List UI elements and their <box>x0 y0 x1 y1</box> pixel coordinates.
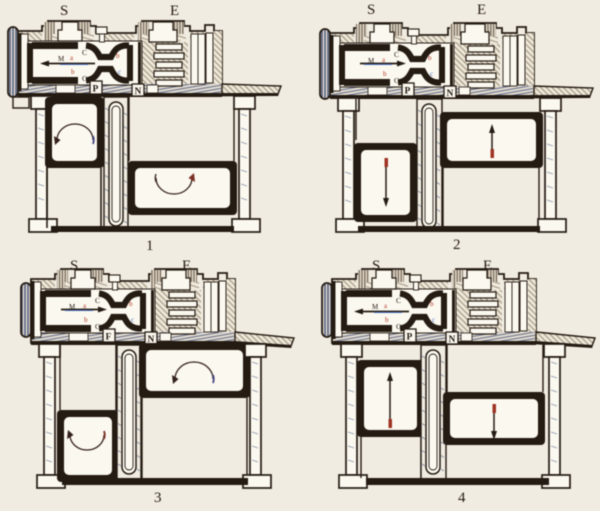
svg-text:N: N <box>447 89 454 99</box>
svg-text:b: b <box>430 300 434 308</box>
svg-text:C: C <box>396 296 401 305</box>
svg-text:b: b <box>129 300 133 308</box>
svg-text:C: C <box>82 48 87 57</box>
svg-text:E: E <box>170 3 179 19</box>
svg-text:P: P <box>405 87 411 97</box>
svg-text:C: C <box>394 76 399 85</box>
svg-text:b: b <box>383 70 387 78</box>
svg-text:c: c <box>432 316 435 324</box>
svg-text:C: C <box>394 50 399 59</box>
svg-text:4: 4 <box>458 490 466 506</box>
svg-text:b: b <box>116 52 120 60</box>
svg-text:N: N <box>135 87 142 97</box>
svg-text:b: b <box>428 54 432 62</box>
svg-text:c: c <box>430 70 433 78</box>
svg-text:M: M <box>58 55 65 63</box>
svg-text:C: C <box>95 296 100 305</box>
svg-text:1: 1 <box>146 238 154 254</box>
svg-text:2: 2 <box>453 237 461 253</box>
svg-text:C: C <box>95 322 100 331</box>
svg-text:C: C <box>82 74 87 83</box>
svg-text:b: b <box>71 68 75 76</box>
svg-text:P: P <box>407 333 413 343</box>
svg-text:b: b <box>385 316 389 324</box>
svg-text:3: 3 <box>154 490 162 506</box>
svg-text:N: N <box>449 335 456 345</box>
svg-text:b: b <box>84 316 88 324</box>
svg-text:E: E <box>477 2 486 18</box>
svg-text:M: M <box>372 303 379 311</box>
svg-text:c: c <box>118 68 121 76</box>
svg-text:S: S <box>367 2 375 18</box>
svg-text:c: c <box>131 316 134 324</box>
svg-text:F: F <box>106 333 112 343</box>
svg-text:C: C <box>396 322 401 331</box>
svg-text:P: P <box>93 85 99 95</box>
svg-text:S: S <box>60 3 68 19</box>
